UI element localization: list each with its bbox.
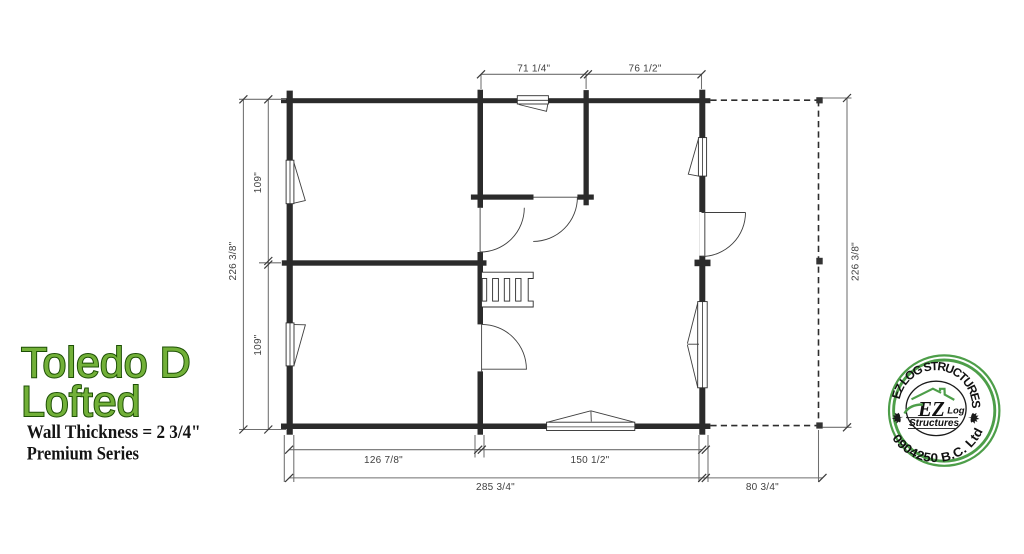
svg-text:71 1/4": 71 1/4" (517, 63, 550, 74)
svg-text:Structures: Structures (909, 418, 959, 429)
svg-text:Wall Thickness = 2 3/4": Wall Thickness = 2 3/4" (27, 422, 201, 443)
svg-text:226 3/8": 226 3/8" (851, 242, 862, 281)
svg-text:Lofted: Lofted (21, 378, 141, 426)
svg-text:126 7/8": 126 7/8" (364, 455, 403, 466)
svg-text:285 3/4": 285 3/4" (476, 482, 515, 493)
svg-text:226 3/8": 226 3/8" (228, 241, 239, 280)
svg-text:Premium Series: Premium Series (27, 444, 140, 465)
svg-text:109": 109" (253, 334, 264, 355)
svg-text:109": 109" (253, 172, 264, 193)
svg-text:76 1/2": 76 1/2" (629, 63, 662, 74)
svg-text:Log: Log (947, 406, 965, 417)
svg-text:150 1/2": 150 1/2" (571, 455, 610, 466)
svg-text:80 3/4": 80 3/4" (746, 482, 779, 493)
